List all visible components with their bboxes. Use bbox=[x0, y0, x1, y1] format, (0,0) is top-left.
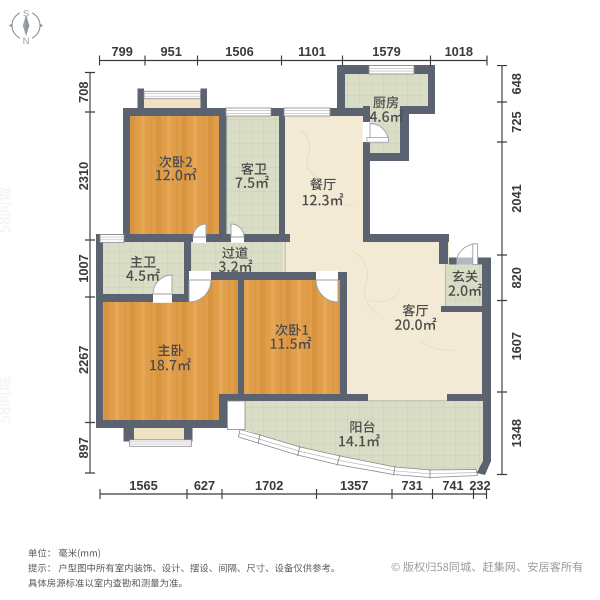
svg-text:799: 799 bbox=[112, 44, 133, 59]
svg-text:2267: 2267 bbox=[76, 346, 91, 374]
svg-text:2041: 2041 bbox=[509, 184, 524, 212]
svg-text:725: 725 bbox=[509, 111, 524, 132]
svg-text:820: 820 bbox=[509, 267, 524, 288]
svg-text:N: N bbox=[23, 36, 30, 47]
svg-text:1565: 1565 bbox=[129, 478, 157, 493]
svg-text:1506: 1506 bbox=[225, 44, 253, 59]
svg-text:708: 708 bbox=[76, 82, 91, 103]
svg-text:1357: 1357 bbox=[340, 478, 368, 493]
svg-text:627: 627 bbox=[194, 478, 215, 493]
svg-text:648: 648 bbox=[509, 73, 524, 94]
svg-text:1607: 1607 bbox=[509, 332, 524, 360]
svg-text:1007: 1007 bbox=[76, 254, 91, 282]
svg-text:1018: 1018 bbox=[445, 44, 473, 59]
svg-text:1348: 1348 bbox=[509, 419, 524, 447]
svg-text:731: 731 bbox=[402, 478, 423, 493]
svg-text:1702: 1702 bbox=[255, 478, 283, 493]
svg-text:1101: 1101 bbox=[298, 44, 326, 59]
svg-text:232: 232 bbox=[469, 478, 490, 493]
svg-text:S: S bbox=[23, 8, 29, 19]
svg-text:897: 897 bbox=[76, 437, 91, 458]
svg-text:1579: 1579 bbox=[372, 44, 400, 59]
svg-text:741: 741 bbox=[442, 478, 463, 493]
svg-text:951: 951 bbox=[161, 44, 182, 59]
svg-text:2310: 2310 bbox=[76, 162, 91, 190]
